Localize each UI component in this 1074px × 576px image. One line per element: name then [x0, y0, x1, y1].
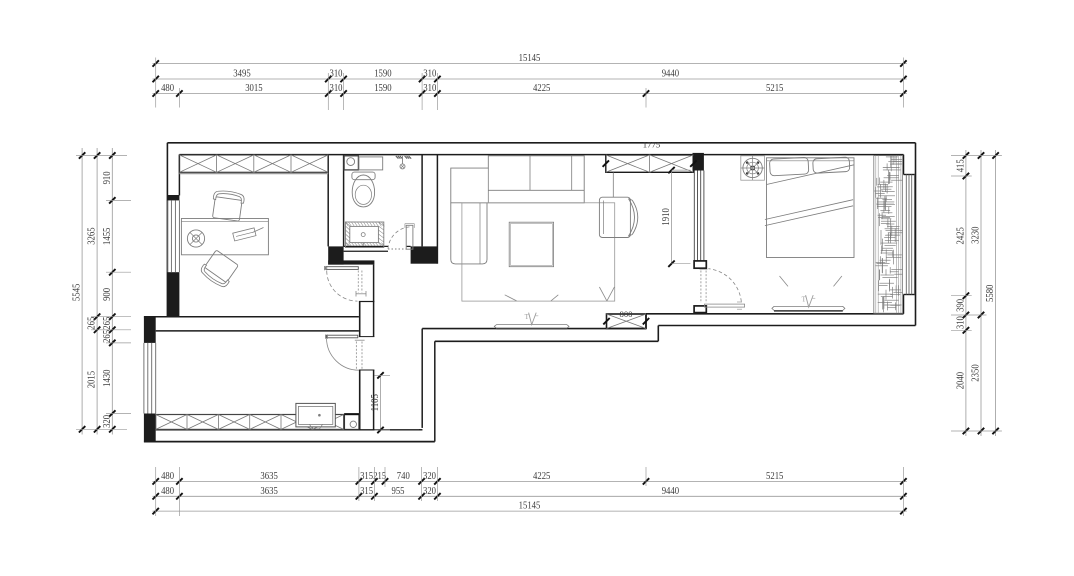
svg-text:1590: 1590 — [374, 69, 391, 80]
svg-text:320: 320 — [423, 486, 436, 497]
svg-text:265: 265 — [102, 330, 113, 343]
svg-text:910: 910 — [102, 171, 113, 184]
svg-text:4225: 4225 — [533, 471, 550, 482]
svg-text:3495: 3495 — [233, 69, 250, 80]
svg-text:900: 900 — [102, 288, 113, 301]
svg-text:480: 480 — [161, 471, 174, 482]
svg-text:320: 320 — [102, 415, 113, 428]
svg-text:2350: 2350 — [971, 364, 982, 381]
svg-text:320: 320 — [423, 471, 436, 482]
svg-text:3635: 3635 — [260, 471, 277, 482]
svg-text:5215: 5215 — [766, 471, 783, 482]
svg-text:15145: 15145 — [519, 501, 541, 512]
svg-text:315: 315 — [360, 471, 373, 482]
svg-text:740: 740 — [397, 471, 410, 482]
svg-text:5580: 5580 — [985, 285, 996, 302]
svg-text:9440: 9440 — [662, 69, 679, 80]
svg-text:265: 265 — [102, 317, 113, 330]
svg-text:1455: 1455 — [102, 228, 113, 245]
svg-text:1910: 1910 — [661, 208, 672, 225]
svg-text:3230: 3230 — [971, 226, 982, 243]
svg-text:310: 310 — [423, 69, 436, 80]
svg-text:480: 480 — [161, 486, 174, 497]
svg-text:415: 415 — [955, 159, 966, 172]
svg-text:2040: 2040 — [955, 372, 966, 389]
svg-text:3265: 3265 — [87, 227, 98, 244]
svg-text:4225: 4225 — [533, 83, 550, 94]
svg-text:9440: 9440 — [662, 486, 679, 497]
svg-text:265: 265 — [87, 317, 98, 330]
svg-text:800: 800 — [620, 309, 633, 319]
svg-text:310: 310 — [423, 83, 436, 94]
svg-text:1105: 1105 — [370, 394, 381, 411]
svg-text:1590: 1590 — [374, 83, 391, 94]
svg-text:315: 315 — [360, 486, 373, 497]
svg-text:215: 215 — [373, 471, 386, 482]
svg-text:1430: 1430 — [102, 370, 113, 387]
svg-text:310: 310 — [330, 69, 343, 80]
svg-text:5545: 5545 — [72, 284, 83, 301]
svg-text:5215: 5215 — [766, 83, 783, 94]
svg-text:310: 310 — [330, 83, 343, 94]
svg-text:310: 310 — [955, 316, 966, 329]
svg-text:3015: 3015 — [245, 83, 262, 94]
svg-text:955: 955 — [392, 486, 405, 497]
svg-text:3635: 3635 — [260, 486, 277, 497]
svg-text:15145: 15145 — [519, 53, 541, 64]
svg-text:2425: 2425 — [955, 227, 966, 244]
svg-text:2015: 2015 — [87, 371, 98, 388]
svg-text:1775: 1775 — [643, 140, 660, 150]
svg-text:390: 390 — [955, 299, 966, 312]
svg-text:480: 480 — [161, 83, 174, 94]
